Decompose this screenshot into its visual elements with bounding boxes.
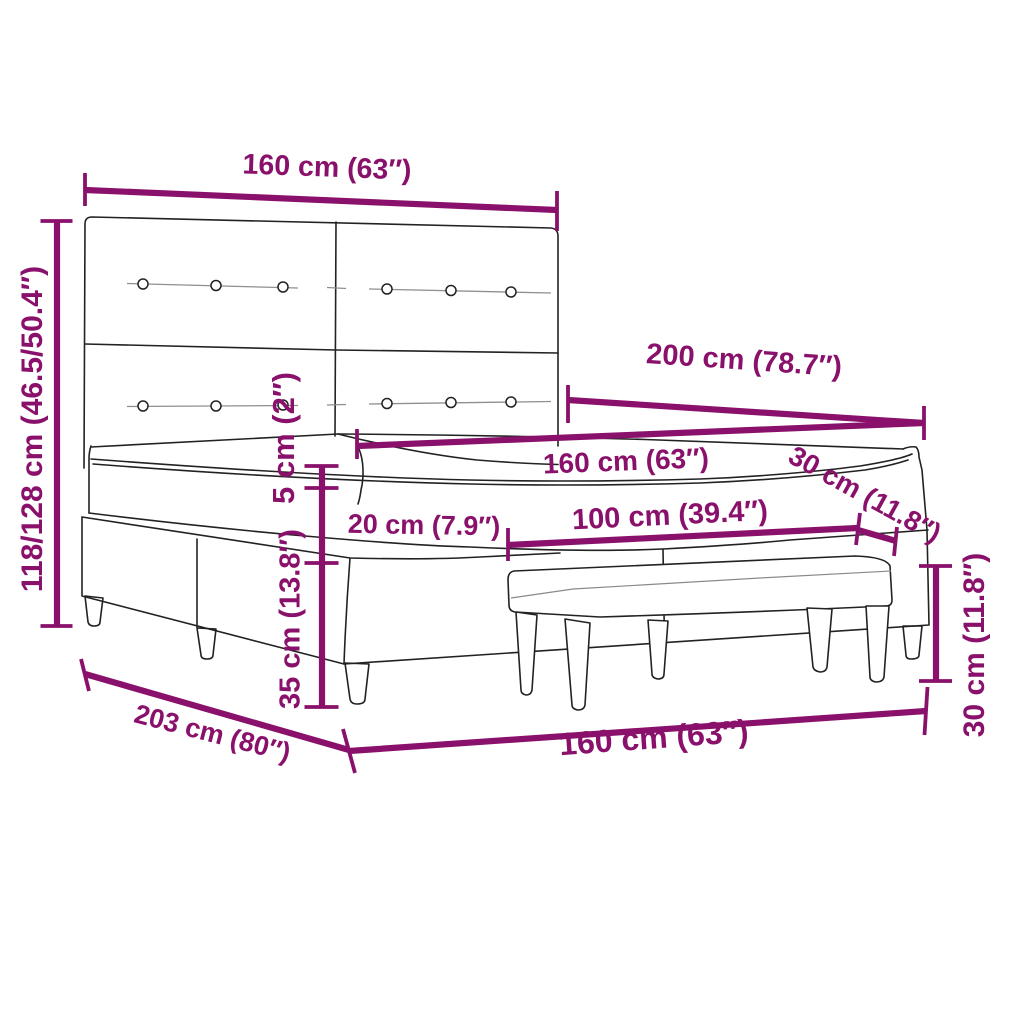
svg-text:20 cm (7.9″): 20 cm (7.9″) bbox=[348, 509, 501, 542]
svg-text:30 cm (11.8″): 30 cm (11.8″) bbox=[958, 553, 991, 737]
svg-text:35 cm (13.8″): 35 cm (13.8″) bbox=[275, 529, 307, 709]
svg-text:160 cm (63″): 160 cm (63″) bbox=[542, 442, 709, 479]
svg-text:5 cm (2″): 5 cm (2″) bbox=[266, 372, 301, 504]
svg-text:160 cm (63″): 160 cm (63″) bbox=[242, 148, 412, 186]
svg-text:118/128 cm (46.5/50.4″): 118/128 cm (46.5/50.4″) bbox=[16, 266, 49, 592]
